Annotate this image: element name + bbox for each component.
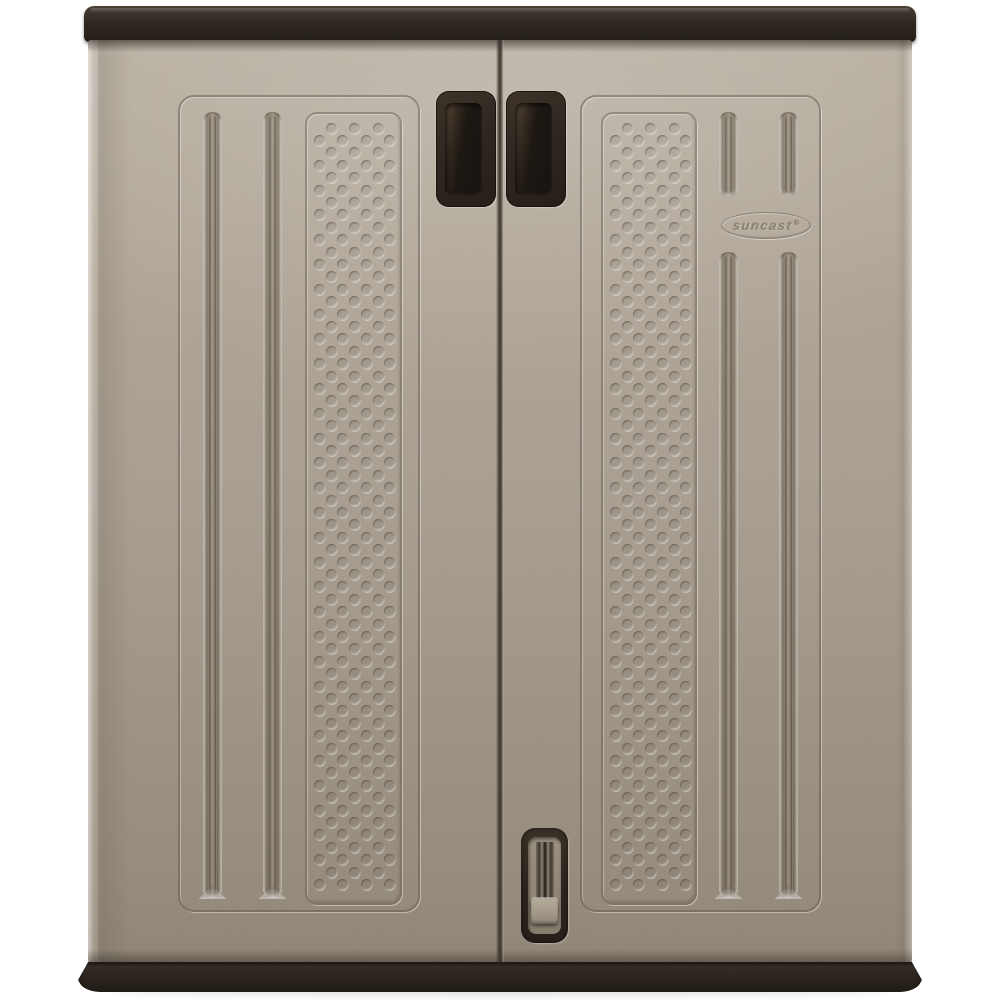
dimple — [349, 594, 360, 605]
dimple — [384, 185, 395, 196]
dimple — [337, 879, 348, 890]
dimple — [610, 755, 621, 766]
dimple — [361, 160, 372, 171]
dimple — [314, 631, 325, 642]
left-handle-recess — [445, 103, 482, 195]
dimple — [645, 321, 656, 332]
dimple — [680, 805, 691, 816]
dimple — [669, 519, 680, 530]
dimple — [622, 569, 633, 580]
latch-slider-button — [531, 898, 558, 924]
dimple — [610, 482, 621, 493]
dimple — [680, 557, 691, 568]
dimple — [314, 209, 325, 220]
dimple — [361, 135, 372, 146]
dimple — [680, 705, 691, 716]
dimple — [314, 557, 325, 568]
dimple — [633, 581, 644, 592]
dimple — [314, 829, 325, 840]
dimple — [337, 333, 348, 344]
dimple — [610, 805, 621, 816]
dimple — [610, 780, 621, 791]
dimple — [680, 383, 691, 394]
dimple — [373, 718, 384, 729]
dimple — [337, 606, 348, 617]
dimple — [610, 234, 621, 245]
dimple — [669, 470, 680, 481]
dimple — [645, 693, 656, 704]
dimple — [680, 854, 691, 865]
dimple — [657, 284, 668, 295]
dimple — [384, 309, 395, 320]
dimple — [645, 197, 656, 208]
dimple — [373, 395, 384, 406]
dimple — [337, 259, 348, 270]
dimple — [680, 879, 691, 890]
dimple — [622, 619, 633, 630]
dimple — [326, 296, 337, 307]
dimple — [384, 259, 395, 270]
dimple — [326, 346, 337, 357]
groove-channel — [209, 115, 216, 895]
dimple — [633, 532, 644, 543]
dimple — [657, 185, 668, 196]
dimple — [361, 829, 372, 840]
dimple — [326, 619, 337, 630]
dimple — [680, 581, 691, 592]
dimple — [361, 383, 372, 394]
dimple — [384, 730, 395, 741]
dimple — [645, 643, 656, 654]
vertical-groove — [779, 252, 798, 898]
suncast-logo-text: suncast — [732, 218, 793, 233]
dimple — [337, 433, 348, 444]
dimple — [384, 805, 395, 816]
dimple — [326, 445, 337, 456]
dimple — [633, 606, 644, 617]
dimple — [633, 457, 644, 468]
dimple — [610, 631, 621, 642]
dimple — [657, 408, 668, 419]
dimple — [326, 867, 337, 878]
dimple — [326, 271, 337, 282]
dimple — [337, 383, 348, 394]
dimple — [361, 656, 372, 667]
dimple — [326, 594, 337, 605]
dimple — [384, 656, 395, 667]
dimple — [384, 829, 395, 840]
dimple — [337, 631, 348, 642]
dimple — [361, 681, 372, 692]
dimple — [645, 123, 656, 134]
dimple — [610, 681, 621, 692]
dimple — [349, 172, 360, 183]
dimple — [633, 730, 644, 741]
dimple — [610, 532, 621, 543]
dimple — [361, 581, 372, 592]
dimple — [633, 755, 644, 766]
dimple — [314, 755, 325, 766]
dimple — [657, 631, 668, 642]
cabinet-base-plinth — [78, 962, 922, 992]
dimple — [610, 879, 621, 890]
dimple — [349, 643, 360, 654]
dimple — [633, 705, 644, 716]
left-door-handle — [436, 91, 496, 207]
dimple — [349, 693, 360, 704]
dimple — [680, 185, 691, 196]
dimple — [326, 718, 337, 729]
dimple — [373, 569, 384, 580]
dimple — [610, 656, 621, 667]
dimple — [314, 780, 325, 791]
dimple — [326, 767, 337, 778]
dimple — [645, 296, 656, 307]
dimple — [314, 383, 325, 394]
dimple — [384, 705, 395, 716]
dimple — [337, 581, 348, 592]
dimple — [337, 408, 348, 419]
dimple — [633, 135, 644, 146]
dimple — [326, 842, 337, 853]
dimple — [314, 185, 325, 196]
dimple — [326, 792, 337, 803]
dimple — [669, 172, 680, 183]
dimple — [361, 854, 372, 865]
dimple — [361, 457, 372, 468]
dimple — [337, 358, 348, 369]
dimple — [326, 371, 337, 382]
dimple — [610, 507, 621, 518]
dimple — [657, 879, 668, 890]
dimple — [610, 457, 621, 468]
dimple — [314, 656, 325, 667]
dimple — [657, 829, 668, 840]
vertical-groove — [203, 112, 222, 898]
dimple — [610, 606, 621, 617]
dimple — [361, 234, 372, 245]
dimple — [349, 296, 360, 307]
dimple — [373, 123, 384, 134]
dimple — [349, 544, 360, 555]
dimple — [326, 247, 337, 258]
dimple — [337, 507, 348, 518]
dimple — [622, 172, 633, 183]
dimple — [384, 681, 395, 692]
dimple — [622, 123, 633, 134]
dimple — [633, 805, 644, 816]
dimple — [680, 507, 691, 518]
dimple — [349, 668, 360, 679]
dimple — [384, 383, 395, 394]
dimple — [622, 743, 633, 754]
dimple — [337, 209, 348, 220]
dimple — [645, 346, 656, 357]
dimple — [337, 780, 348, 791]
dimple — [657, 606, 668, 617]
dimple — [610, 209, 621, 220]
dimple — [669, 743, 680, 754]
dimple — [610, 135, 621, 146]
vertical-groove — [263, 112, 282, 898]
dimple — [314, 358, 325, 369]
dimple — [657, 681, 668, 692]
dimple — [622, 495, 633, 506]
groove-channel — [269, 115, 276, 895]
dimple — [622, 643, 633, 654]
dimple — [645, 867, 656, 878]
dimple — [314, 457, 325, 468]
dimple — [622, 445, 633, 456]
dimple — [361, 209, 372, 220]
dimple — [669, 643, 680, 654]
dimple — [373, 346, 384, 357]
dimple — [349, 569, 360, 580]
dimple — [657, 234, 668, 245]
dimple — [622, 321, 633, 332]
dimple — [657, 457, 668, 468]
lid-edge-highlight — [90, 8, 910, 13]
dimple — [337, 730, 348, 741]
dimple — [610, 333, 621, 344]
dimple — [657, 259, 668, 270]
dimple — [326, 147, 337, 158]
dimple — [349, 470, 360, 481]
dimple — [314, 333, 325, 344]
dimple — [337, 854, 348, 865]
dimple — [657, 780, 668, 791]
dimple — [349, 346, 360, 357]
dimple — [610, 408, 621, 419]
dimple — [633, 656, 644, 667]
dimple — [633, 259, 644, 270]
dimple — [384, 780, 395, 791]
dimple — [337, 160, 348, 171]
dimple — [314, 532, 325, 543]
dimple — [669, 445, 680, 456]
right-door-handle — [506, 91, 566, 207]
dimple — [337, 557, 348, 568]
dimple — [373, 321, 384, 332]
dimple — [645, 594, 656, 605]
dimple — [669, 296, 680, 307]
dimple — [680, 284, 691, 295]
dimple — [633, 681, 644, 692]
dimple — [361, 284, 372, 295]
dimple — [645, 569, 656, 580]
dimple — [645, 718, 656, 729]
dimple — [361, 482, 372, 493]
dimple — [384, 209, 395, 220]
dimple — [657, 358, 668, 369]
dimple — [657, 755, 668, 766]
dimple — [326, 495, 337, 506]
dimple — [314, 854, 325, 865]
dimple — [633, 284, 644, 295]
dimple — [361, 259, 372, 270]
dimple — [657, 482, 668, 493]
dimple — [361, 879, 372, 890]
dimple — [610, 557, 621, 568]
dimple — [373, 619, 384, 630]
dimple — [610, 433, 621, 444]
dimple — [314, 482, 325, 493]
dimple — [373, 668, 384, 679]
dimple — [645, 271, 656, 282]
dimple — [645, 445, 656, 456]
dimple — [349, 445, 360, 456]
dimple — [361, 557, 372, 568]
dimple — [349, 123, 360, 134]
dimple — [314, 160, 325, 171]
dimple — [669, 495, 680, 506]
dimple — [326, 197, 337, 208]
dimple — [384, 631, 395, 642]
dimple — [373, 172, 384, 183]
dimple — [669, 197, 680, 208]
dimple — [645, 495, 656, 506]
dimple — [349, 718, 360, 729]
registered-trademark-symbol: ® — [794, 213, 799, 227]
vertical-groove — [719, 252, 738, 898]
vertical-groove — [779, 112, 798, 196]
dimple — [610, 185, 621, 196]
dimple — [633, 333, 644, 344]
dimple — [622, 395, 633, 406]
slide-latch — [521, 828, 568, 943]
dimple — [680, 160, 691, 171]
dimple — [349, 619, 360, 630]
dimple — [610, 581, 621, 592]
dimple — [657, 854, 668, 865]
dimple — [669, 321, 680, 332]
dimple — [669, 792, 680, 803]
dimple — [384, 507, 395, 518]
dimple — [680, 259, 691, 270]
dimple — [373, 842, 384, 853]
dimple — [373, 519, 384, 530]
dimple — [669, 594, 680, 605]
dimple — [361, 532, 372, 543]
dimple — [633, 482, 644, 493]
dimple — [680, 408, 691, 419]
dimple — [384, 457, 395, 468]
dimple — [373, 544, 384, 555]
dimple — [326, 222, 337, 233]
dimple — [657, 333, 668, 344]
dimple — [373, 594, 384, 605]
dimple — [337, 234, 348, 245]
dimple — [622, 718, 633, 729]
dimple — [680, 333, 691, 344]
dimple — [361, 433, 372, 444]
dimple — [622, 544, 633, 555]
dimple — [645, 147, 656, 158]
dimple — [373, 495, 384, 506]
dimple — [669, 718, 680, 729]
dimple — [326, 544, 337, 555]
dimple — [657, 705, 668, 716]
dimple — [633, 383, 644, 394]
dimple — [373, 867, 384, 878]
dimple — [326, 643, 337, 654]
dimple — [622, 346, 633, 357]
dimple — [633, 854, 644, 865]
dimple — [633, 309, 644, 320]
dimple — [645, 792, 656, 803]
dimple — [680, 829, 691, 840]
dimple — [680, 135, 691, 146]
dimple — [349, 743, 360, 754]
dimple — [384, 755, 395, 766]
dimple — [633, 234, 644, 245]
dimple — [373, 470, 384, 481]
dimple — [680, 234, 691, 245]
dimple — [633, 879, 644, 890]
dimple — [314, 135, 325, 146]
dimple — [669, 147, 680, 158]
dimple — [349, 395, 360, 406]
dimple — [314, 433, 325, 444]
dimple — [633, 433, 644, 444]
dimple — [633, 185, 644, 196]
dimple — [361, 606, 372, 617]
dimple — [645, 247, 656, 258]
dimple — [680, 780, 691, 791]
dimple — [384, 532, 395, 543]
dimple — [349, 867, 360, 878]
dimple — [314, 879, 325, 890]
right-door-dimple-panel — [601, 112, 697, 905]
dimple — [349, 222, 360, 233]
dimple — [373, 147, 384, 158]
dimple — [622, 842, 633, 853]
dimple — [622, 867, 633, 878]
dimple — [633, 507, 644, 518]
dimple — [669, 123, 680, 134]
dimple — [349, 197, 360, 208]
suncast-logo-badge: suncast ® — [721, 212, 811, 239]
dimple — [373, 743, 384, 754]
dimple — [384, 482, 395, 493]
dimple — [337, 482, 348, 493]
dimple — [326, 668, 337, 679]
dimple — [610, 829, 621, 840]
dimple — [326, 817, 337, 828]
dimple — [680, 532, 691, 543]
dimple — [314, 606, 325, 617]
dimple — [657, 433, 668, 444]
dimple — [361, 185, 372, 196]
dimple — [657, 730, 668, 741]
dimple — [384, 408, 395, 419]
dimple — [633, 631, 644, 642]
dimple — [337, 755, 348, 766]
dimple — [361, 780, 372, 791]
dimple — [326, 743, 337, 754]
dimple — [610, 160, 621, 171]
dimple — [645, 519, 656, 530]
dimple — [314, 705, 325, 716]
dimple — [337, 309, 348, 320]
dimple — [610, 284, 621, 295]
dimple — [622, 817, 633, 828]
dimple — [645, 395, 656, 406]
dimple — [633, 160, 644, 171]
dimple — [657, 383, 668, 394]
right-handle-recess — [515, 103, 552, 195]
dimple — [645, 817, 656, 828]
